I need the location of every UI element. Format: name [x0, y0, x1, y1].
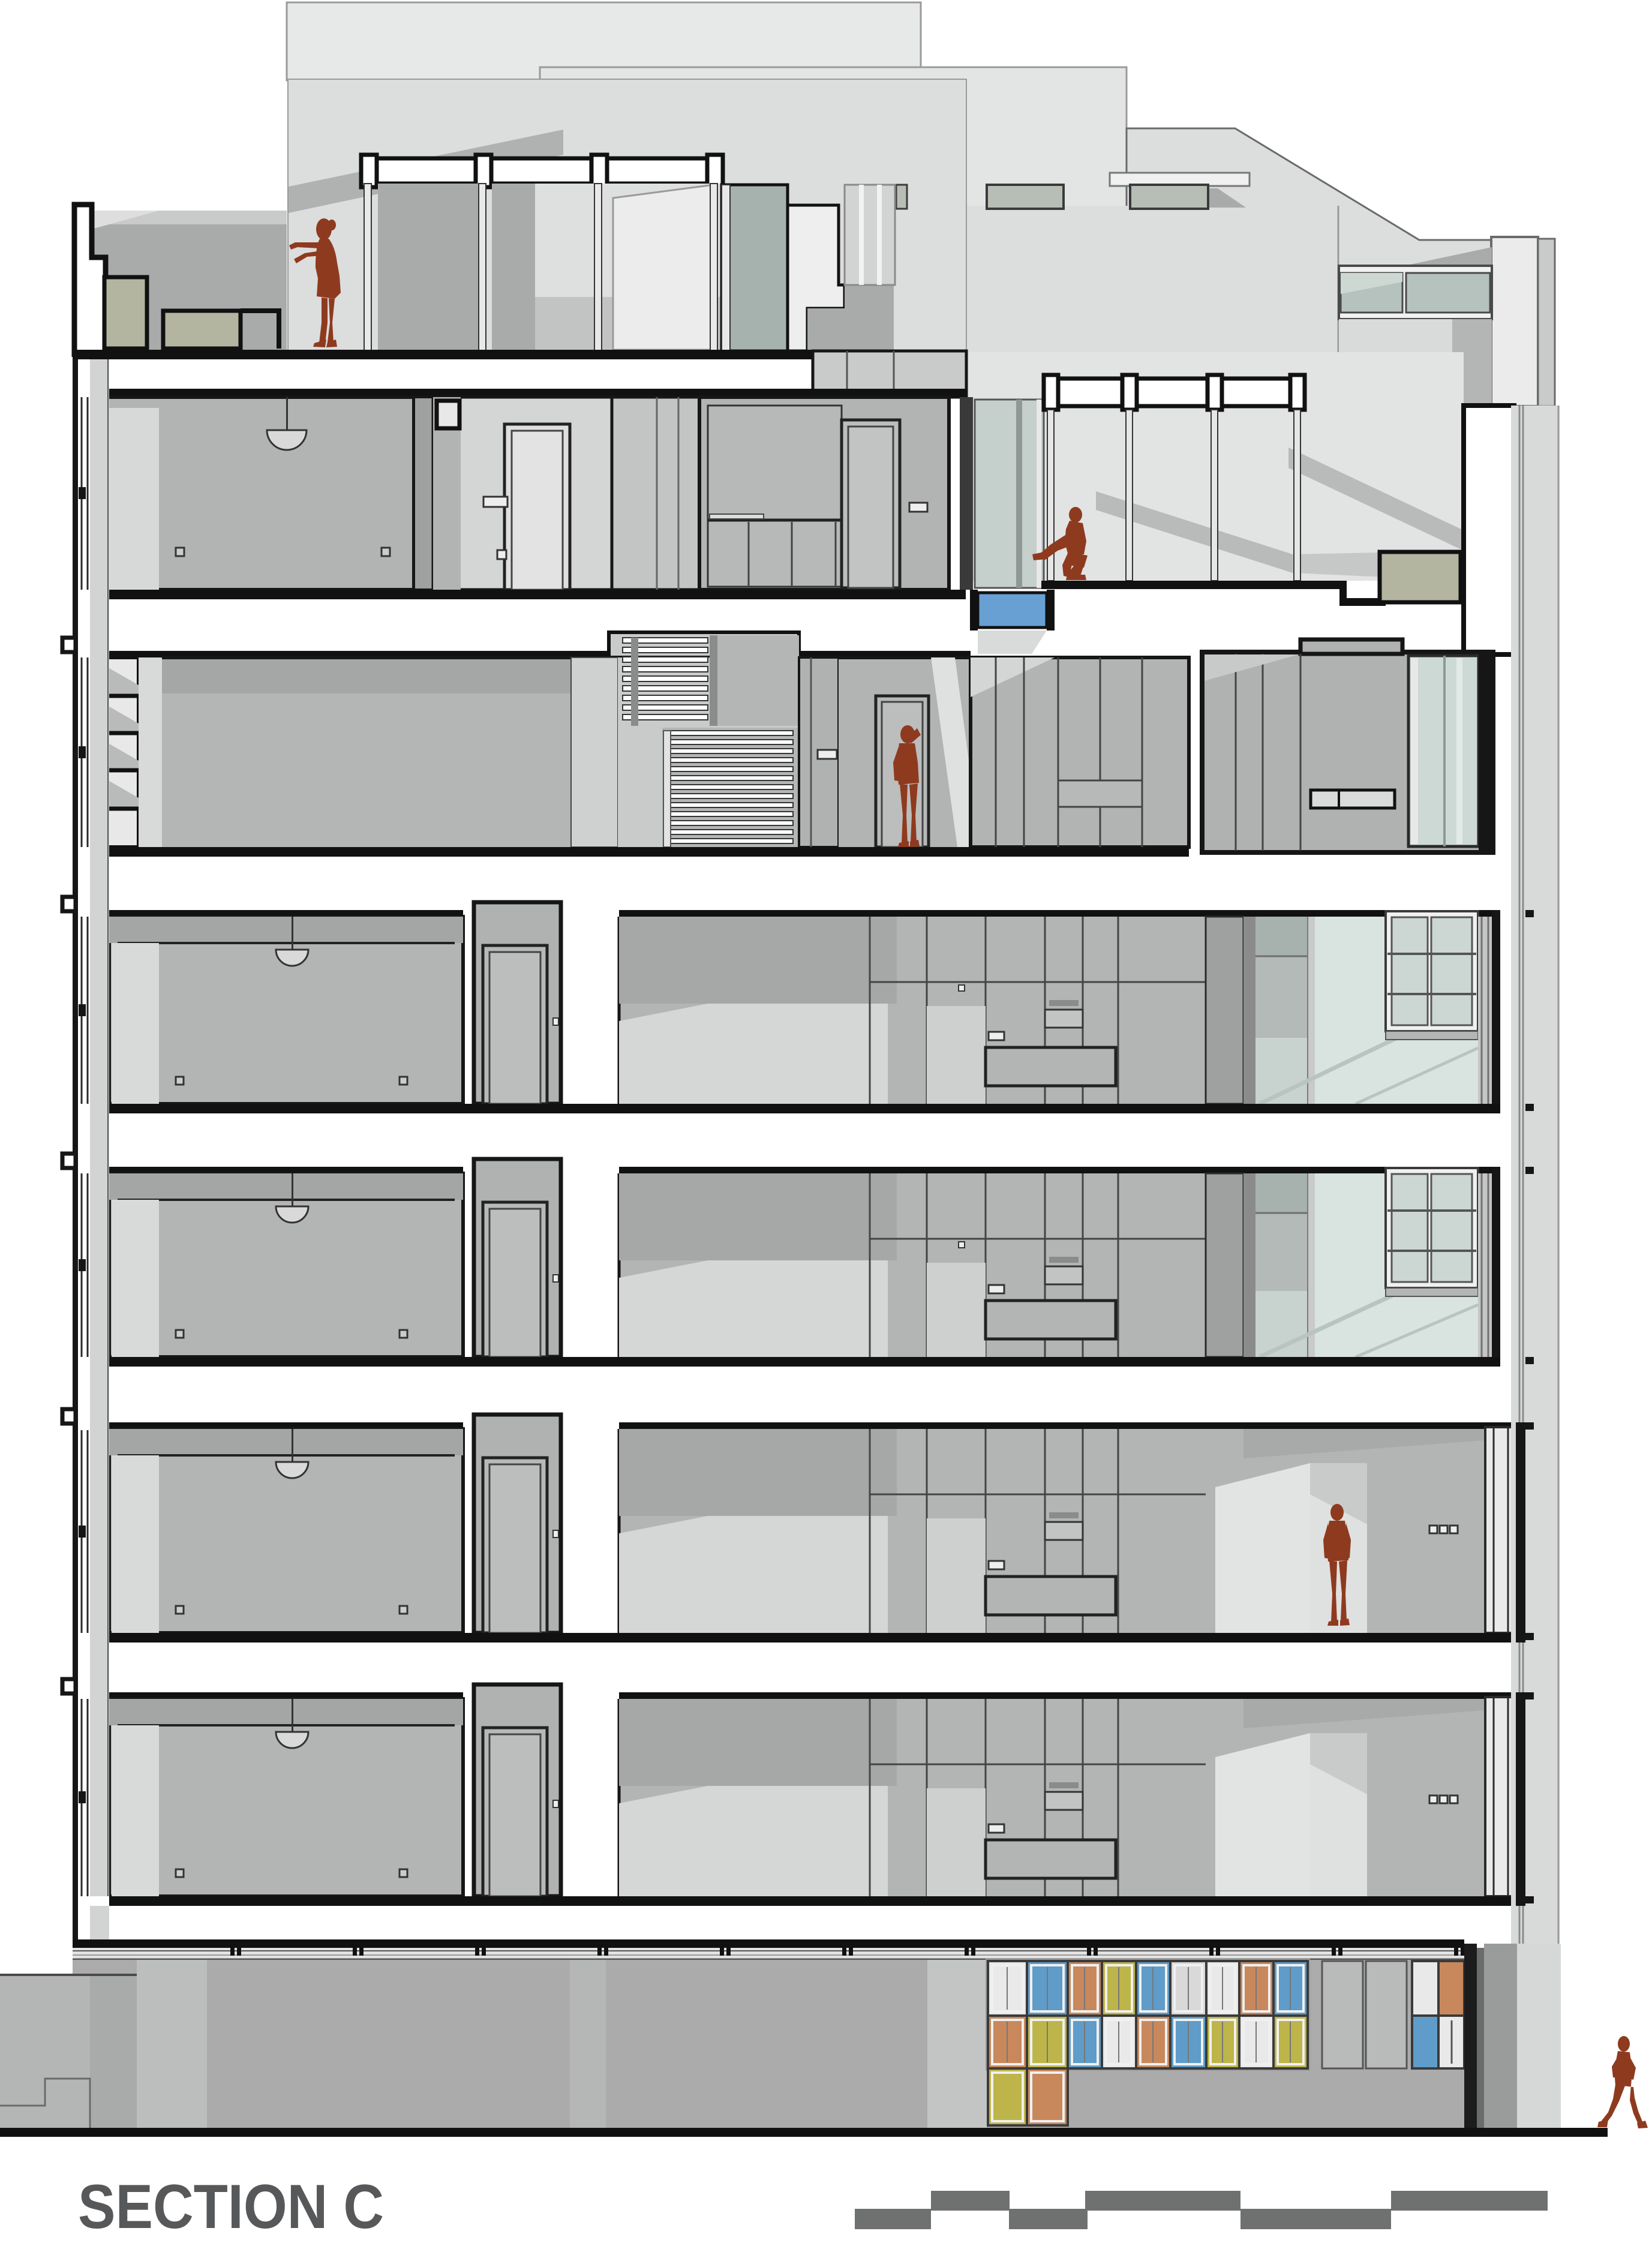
svg-text:SECTION C: SECTION C — [78, 2172, 384, 2242]
